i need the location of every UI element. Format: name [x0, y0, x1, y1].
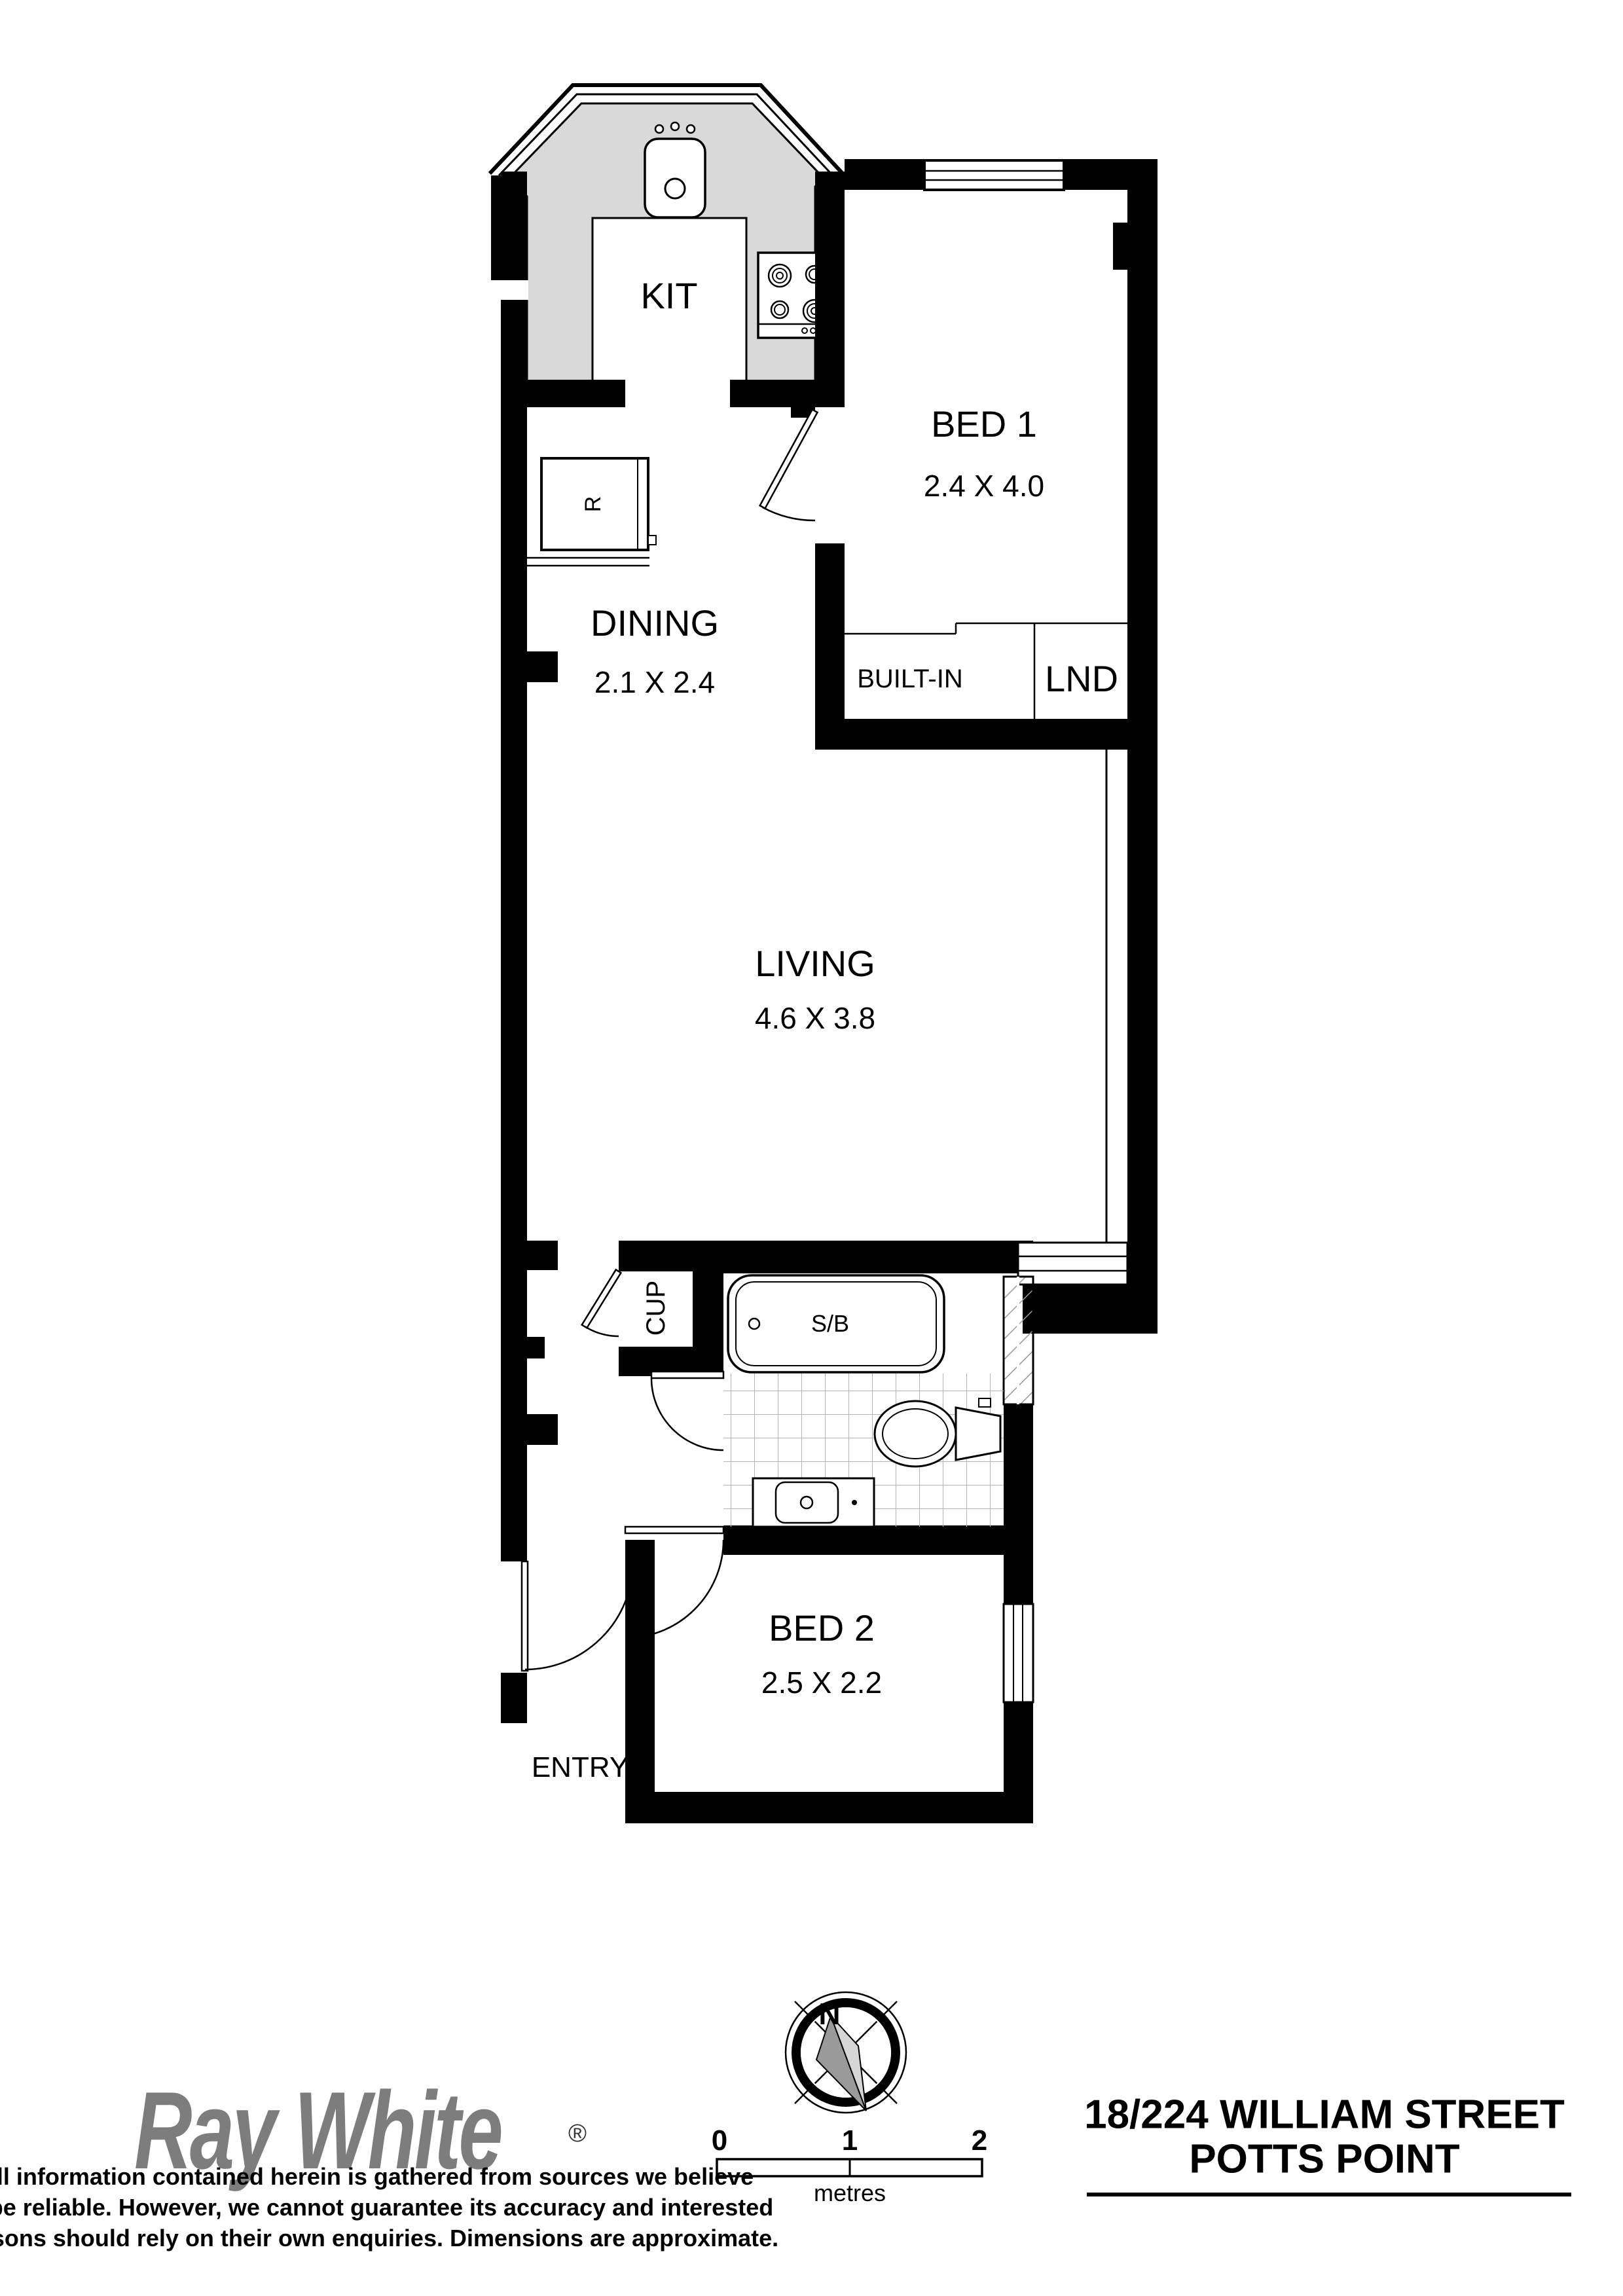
- floorplan-page: KIT BED 1 2.4 X 4.0 DINING 2.1 X 2.4 BUI…: [0, 0, 1623, 2296]
- scale-unit-label: metres: [814, 2181, 886, 2205]
- scale-tick-0: 0: [712, 2126, 727, 2155]
- address-line-2: POTTS POINT: [1189, 2136, 1459, 2183]
- scale-tick-1: 1: [842, 2126, 858, 2155]
- address-line-1: 18/224 WILLIAM STREET: [1084, 2092, 1565, 2138]
- cupboard-label: CUP: [643, 1281, 669, 1336]
- builtin-label: BUILT-IN: [857, 666, 963, 692]
- kitchen-label: KIT: [640, 278, 697, 314]
- compass-icon: [786, 1992, 906, 2113]
- dining-label: DINING: [591, 605, 719, 642]
- fridge-label: R: [582, 496, 604, 513]
- bathroom-door-icon: [651, 1372, 723, 1450]
- compass-north-label: N: [818, 1999, 840, 2029]
- scale-bar: [717, 2159, 982, 2176]
- laundry-label: LND: [1045, 661, 1118, 697]
- registered-mark: ®: [568, 2120, 587, 2148]
- bathroom-hatched-window: [1004, 1277, 1033, 1404]
- left-wall-notch: [501, 280, 528, 300]
- bed2-dimensions: 2.5 X 2.2: [761, 1667, 882, 1698]
- bed1-label: BED 1: [931, 406, 1037, 443]
- shower-bath-label: S/B: [811, 1312, 849, 1336]
- disclaimer-line-1: All information contained herein is gath…: [0, 2163, 754, 2191]
- disclaimer-line-2: to be reliable. However, we cannot guara…: [0, 2194, 773, 2221]
- dining-dimensions: 2.1 X 2.4: [594, 667, 715, 697]
- living-label: LIVING: [755, 945, 875, 982]
- living-dimensions: 4.6 X 3.8: [755, 1003, 875, 1033]
- bed2-label: BED 2: [769, 1610, 875, 1647]
- disclaimer-line-3: persons should rely on their own enquiri…: [0, 2225, 778, 2252]
- bed1-window-icon: [924, 160, 1064, 190]
- walls: [491, 159, 1158, 1823]
- vanity-icon: [753, 1478, 874, 1527]
- living-window-band: [1018, 1243, 1127, 1285]
- entry-label: ENTRY: [532, 1753, 629, 1782]
- bed1-door-icon: [760, 406, 818, 520]
- bed2-window-icon: [1004, 1604, 1033, 1702]
- cupboard-door-icon: [582, 1269, 621, 1336]
- scale-tick-2: 2: [972, 2126, 987, 2155]
- bed1-dimensions: 2.4 X 4.0: [924, 471, 1044, 501]
- floorplan-drawing: [0, 0, 1623, 2296]
- entry-door-icon: [522, 1561, 633, 1671]
